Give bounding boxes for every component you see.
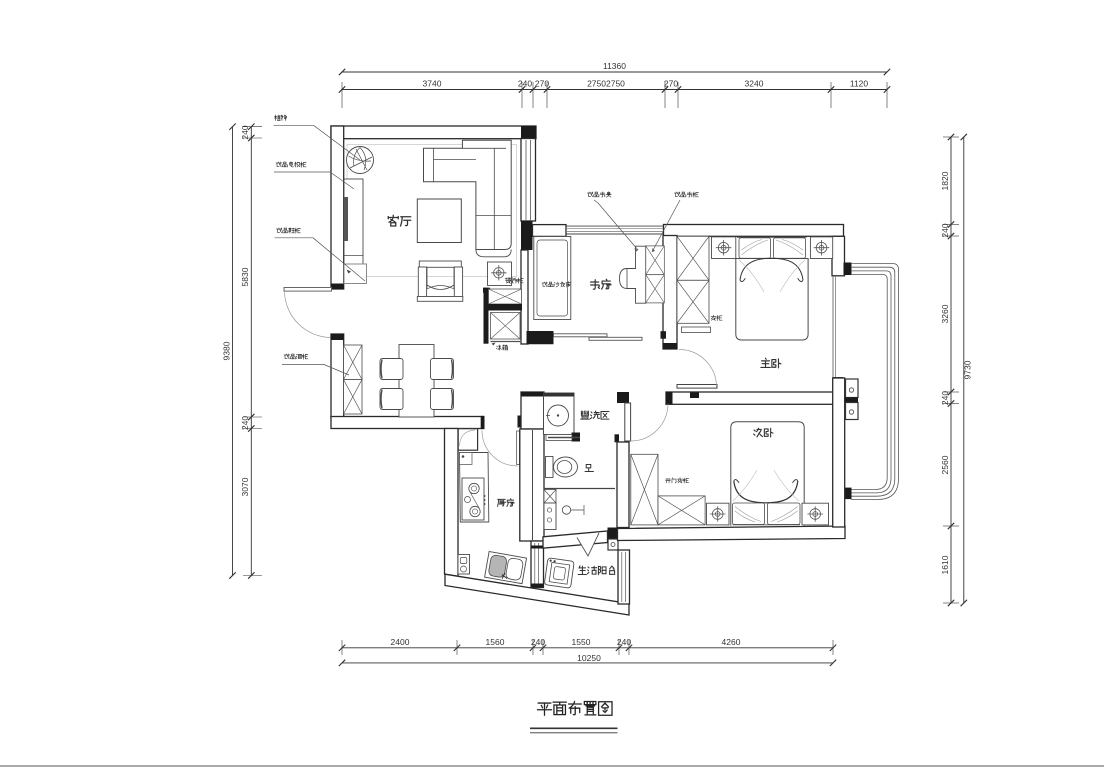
svg-text:3240: 3240 bbox=[745, 79, 764, 89]
svg-text:1560: 1560 bbox=[486, 637, 505, 647]
svg-text:240: 240 bbox=[518, 79, 532, 89]
svg-text:1550: 1550 bbox=[572, 637, 591, 647]
svg-text:3740: 3740 bbox=[423, 79, 442, 89]
svg-text:4260: 4260 bbox=[722, 637, 741, 647]
svg-text:2400: 2400 bbox=[391, 637, 410, 647]
svg-text:240: 240 bbox=[617, 637, 631, 647]
svg-text:9380: 9380 bbox=[222, 341, 232, 360]
svg-text:240: 240 bbox=[240, 125, 250, 139]
svg-text:10250: 10250 bbox=[577, 653, 601, 663]
svg-text:3260: 3260 bbox=[940, 304, 950, 323]
svg-text:240: 240 bbox=[531, 637, 545, 647]
svg-text:1120: 1120 bbox=[850, 79, 869, 89]
svg-text:1820: 1820 bbox=[940, 171, 950, 190]
svg-text:1610: 1610 bbox=[940, 555, 950, 574]
svg-text:5830: 5830 bbox=[240, 267, 250, 286]
svg-text:270: 270 bbox=[535, 79, 549, 89]
svg-text:240: 240 bbox=[240, 416, 250, 430]
svg-text:240: 240 bbox=[940, 223, 950, 237]
svg-text:270: 270 bbox=[664, 79, 678, 89]
svg-text:2560: 2560 bbox=[940, 455, 950, 474]
svg-text:11360: 11360 bbox=[603, 61, 626, 71]
svg-text:3070: 3070 bbox=[240, 477, 250, 496]
svg-text:27502750: 27502750 bbox=[587, 79, 625, 89]
svg-text:240: 240 bbox=[940, 391, 950, 405]
svg-text:9730: 9730 bbox=[963, 360, 973, 379]
